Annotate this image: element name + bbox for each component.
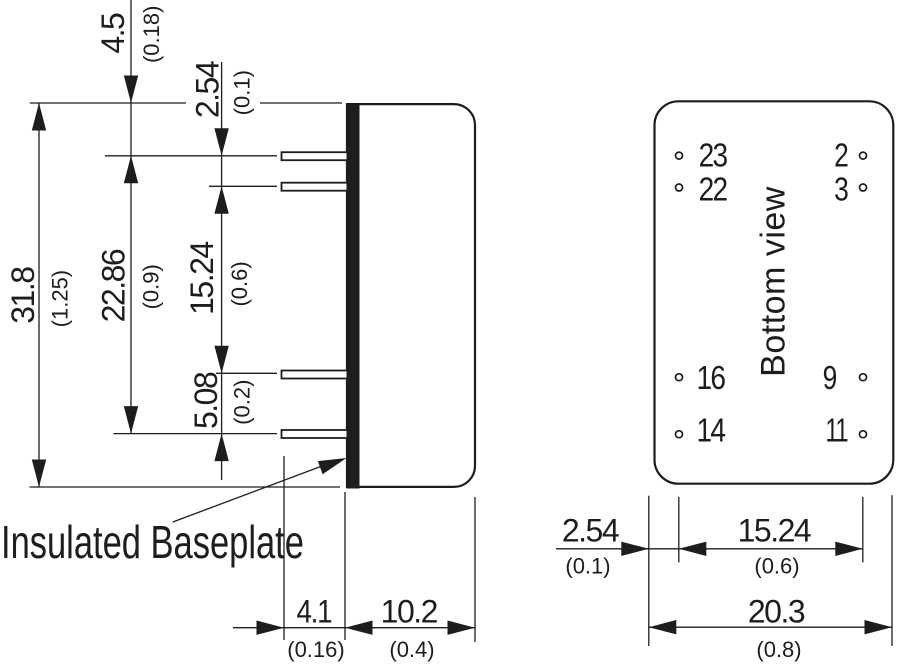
svg-text:23: 23: [699, 138, 728, 175]
svg-text:(1.25): (1.25): [47, 270, 72, 327]
svg-text:(0.8): (0.8): [756, 637, 801, 662]
svg-text:15.24: 15.24: [738, 513, 811, 549]
svg-text:4.1: 4.1: [297, 595, 332, 630]
svg-text:(0.1): (0.1): [565, 554, 610, 579]
svg-text:(0.9): (0.9): [139, 264, 164, 309]
svg-text:14: 14: [697, 413, 726, 450]
svg-text:2.54: 2.54: [189, 61, 225, 118]
svg-text:(0.2): (0.2): [230, 380, 255, 425]
svg-text:9: 9: [823, 360, 837, 396]
svg-text:15.24: 15.24: [184, 242, 220, 315]
svg-text:22.86: 22.86: [95, 249, 131, 322]
svg-text:22: 22: [699, 171, 728, 208]
svg-text:(0.18): (0.18): [139, 6, 164, 63]
svg-text:3: 3: [834, 172, 848, 208]
svg-text:5.08: 5.08: [188, 372, 224, 429]
svg-text:(0.16): (0.16): [287, 637, 344, 662]
svg-text:16: 16: [697, 360, 726, 397]
svg-text:Bottom view: Bottom view: [755, 186, 793, 377]
svg-text:(0.1): (0.1): [229, 70, 254, 115]
svg-text:2: 2: [834, 138, 848, 174]
svg-text:11: 11: [825, 413, 847, 450]
svg-text:2.54: 2.54: [562, 513, 619, 549]
svg-text:31.8: 31.8: [5, 267, 41, 324]
svg-text:Insulated Baseplate: Insulated Baseplate: [1, 516, 304, 568]
svg-text:(0.4): (0.4): [389, 637, 434, 662]
svg-text:(0.6): (0.6): [227, 261, 252, 306]
svg-text:4.5: 4.5: [95, 13, 131, 54]
svg-text:(0.6): (0.6): [754, 554, 799, 579]
svg-text:10.2: 10.2: [381, 594, 438, 630]
svg-text:20.3: 20.3: [748, 594, 805, 630]
